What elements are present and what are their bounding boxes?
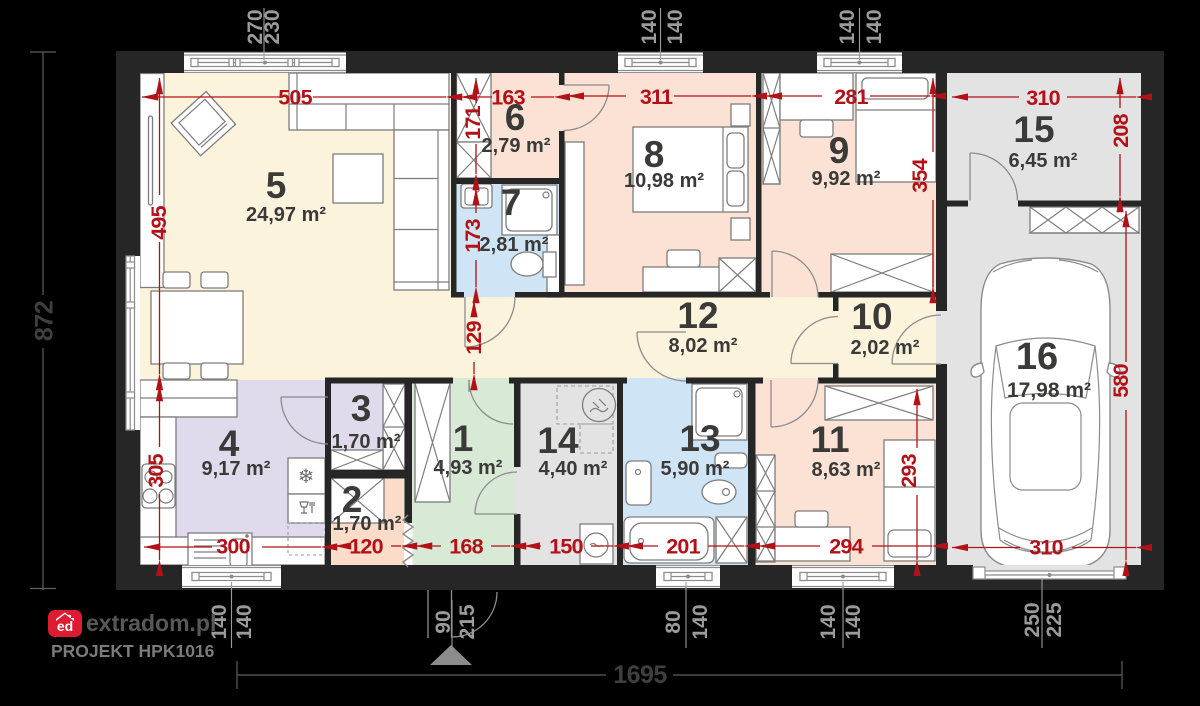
svg-text:140: 140 [233,604,256,639]
svg-text:1695: 1695 [613,661,667,689]
svg-text:16: 16 [1016,336,1058,378]
svg-text:1,70 m²: 1,70 m² [333,513,402,535]
svg-text:140: 140 [638,9,661,44]
svg-text:293: 293 [897,453,921,487]
svg-text:7: 7 [501,182,522,223]
svg-text:872: 872 [31,301,59,341]
svg-text:10: 10 [851,296,892,337]
svg-text:4,40 m²: 4,40 m² [539,458,608,480]
svg-text:❄: ❄ [298,466,315,488]
svg-text:8,02 m²: 8,02 m² [669,335,738,357]
svg-text:14: 14 [537,420,579,461]
svg-text:12: 12 [677,295,718,336]
svg-text:2,02 m²: 2,02 m² [851,337,920,359]
svg-text:300: 300 [216,535,250,559]
svg-text:13: 13 [679,418,720,459]
svg-text:201: 201 [666,535,700,559]
svg-text:120: 120 [349,535,383,559]
svg-text:311: 311 [640,85,673,109]
svg-text:225: 225 [1043,602,1066,637]
svg-text:140: 140 [863,9,886,44]
svg-text:168: 168 [449,535,483,559]
svg-text:140: 140 [689,604,712,639]
svg-text:1,70 m²: 1,70 m² [332,431,401,453]
svg-text:PROJEKT HPK1016: PROJEKT HPK1016 [51,641,215,661]
svg-text:140: 140 [842,604,865,639]
svg-text:8: 8 [644,134,665,175]
svg-text:8,63 m²: 8,63 m² [812,459,881,481]
svg-text:140: 140 [836,9,859,44]
svg-text:11: 11 [810,419,849,460]
svg-text:6: 6 [505,97,526,138]
svg-text:140: 140 [817,604,840,639]
svg-text:2,81 m²: 2,81 m² [480,234,549,256]
svg-text:6,45 m²: 6,45 m² [1009,150,1078,172]
svg-text:354: 354 [908,158,932,192]
svg-text:580: 580 [1109,363,1133,397]
svg-text:extradom.pl: extradom.pl [86,610,216,636]
svg-text:150: 150 [549,535,583,559]
svg-text:208: 208 [1109,113,1133,147]
svg-text:ed: ed [57,618,73,634]
svg-text:4,93 m²: 4,93 m² [434,457,503,479]
svg-text:1: 1 [453,418,474,459]
svg-text:9,92 m²: 9,92 m² [812,168,881,190]
svg-text:129: 129 [462,320,486,354]
svg-text:80: 80 [662,610,685,633]
svg-text:294: 294 [829,535,863,559]
svg-text:250: 250 [1021,602,1044,637]
svg-text:90: 90 [432,610,455,633]
svg-text:281: 281 [834,85,868,109]
svg-text:9,17 m²: 9,17 m² [202,458,271,480]
svg-text:140: 140 [664,9,687,44]
svg-text:24,97 m²: 24,97 m² [246,204,326,226]
svg-text:17,98 m²: 17,98 m² [1007,379,1091,402]
svg-text:3: 3 [351,388,372,429]
svg-text:9: 9 [829,130,850,171]
svg-text:215: 215 [456,604,479,639]
svg-text:310: 310 [1026,86,1060,110]
svg-text:5: 5 [266,165,287,206]
svg-text:230: 230 [261,9,284,44]
svg-text:2,79 m²: 2,79 m² [482,135,551,157]
svg-text:305: 305 [144,453,168,487]
svg-text:310: 310 [1029,536,1063,560]
svg-text:505: 505 [278,86,312,110]
svg-text:10,98 m²: 10,98 m² [624,170,704,192]
svg-text:5,90 m²: 5,90 m² [661,458,730,480]
svg-text:15: 15 [1013,109,1054,150]
svg-text:495: 495 [147,205,171,239]
